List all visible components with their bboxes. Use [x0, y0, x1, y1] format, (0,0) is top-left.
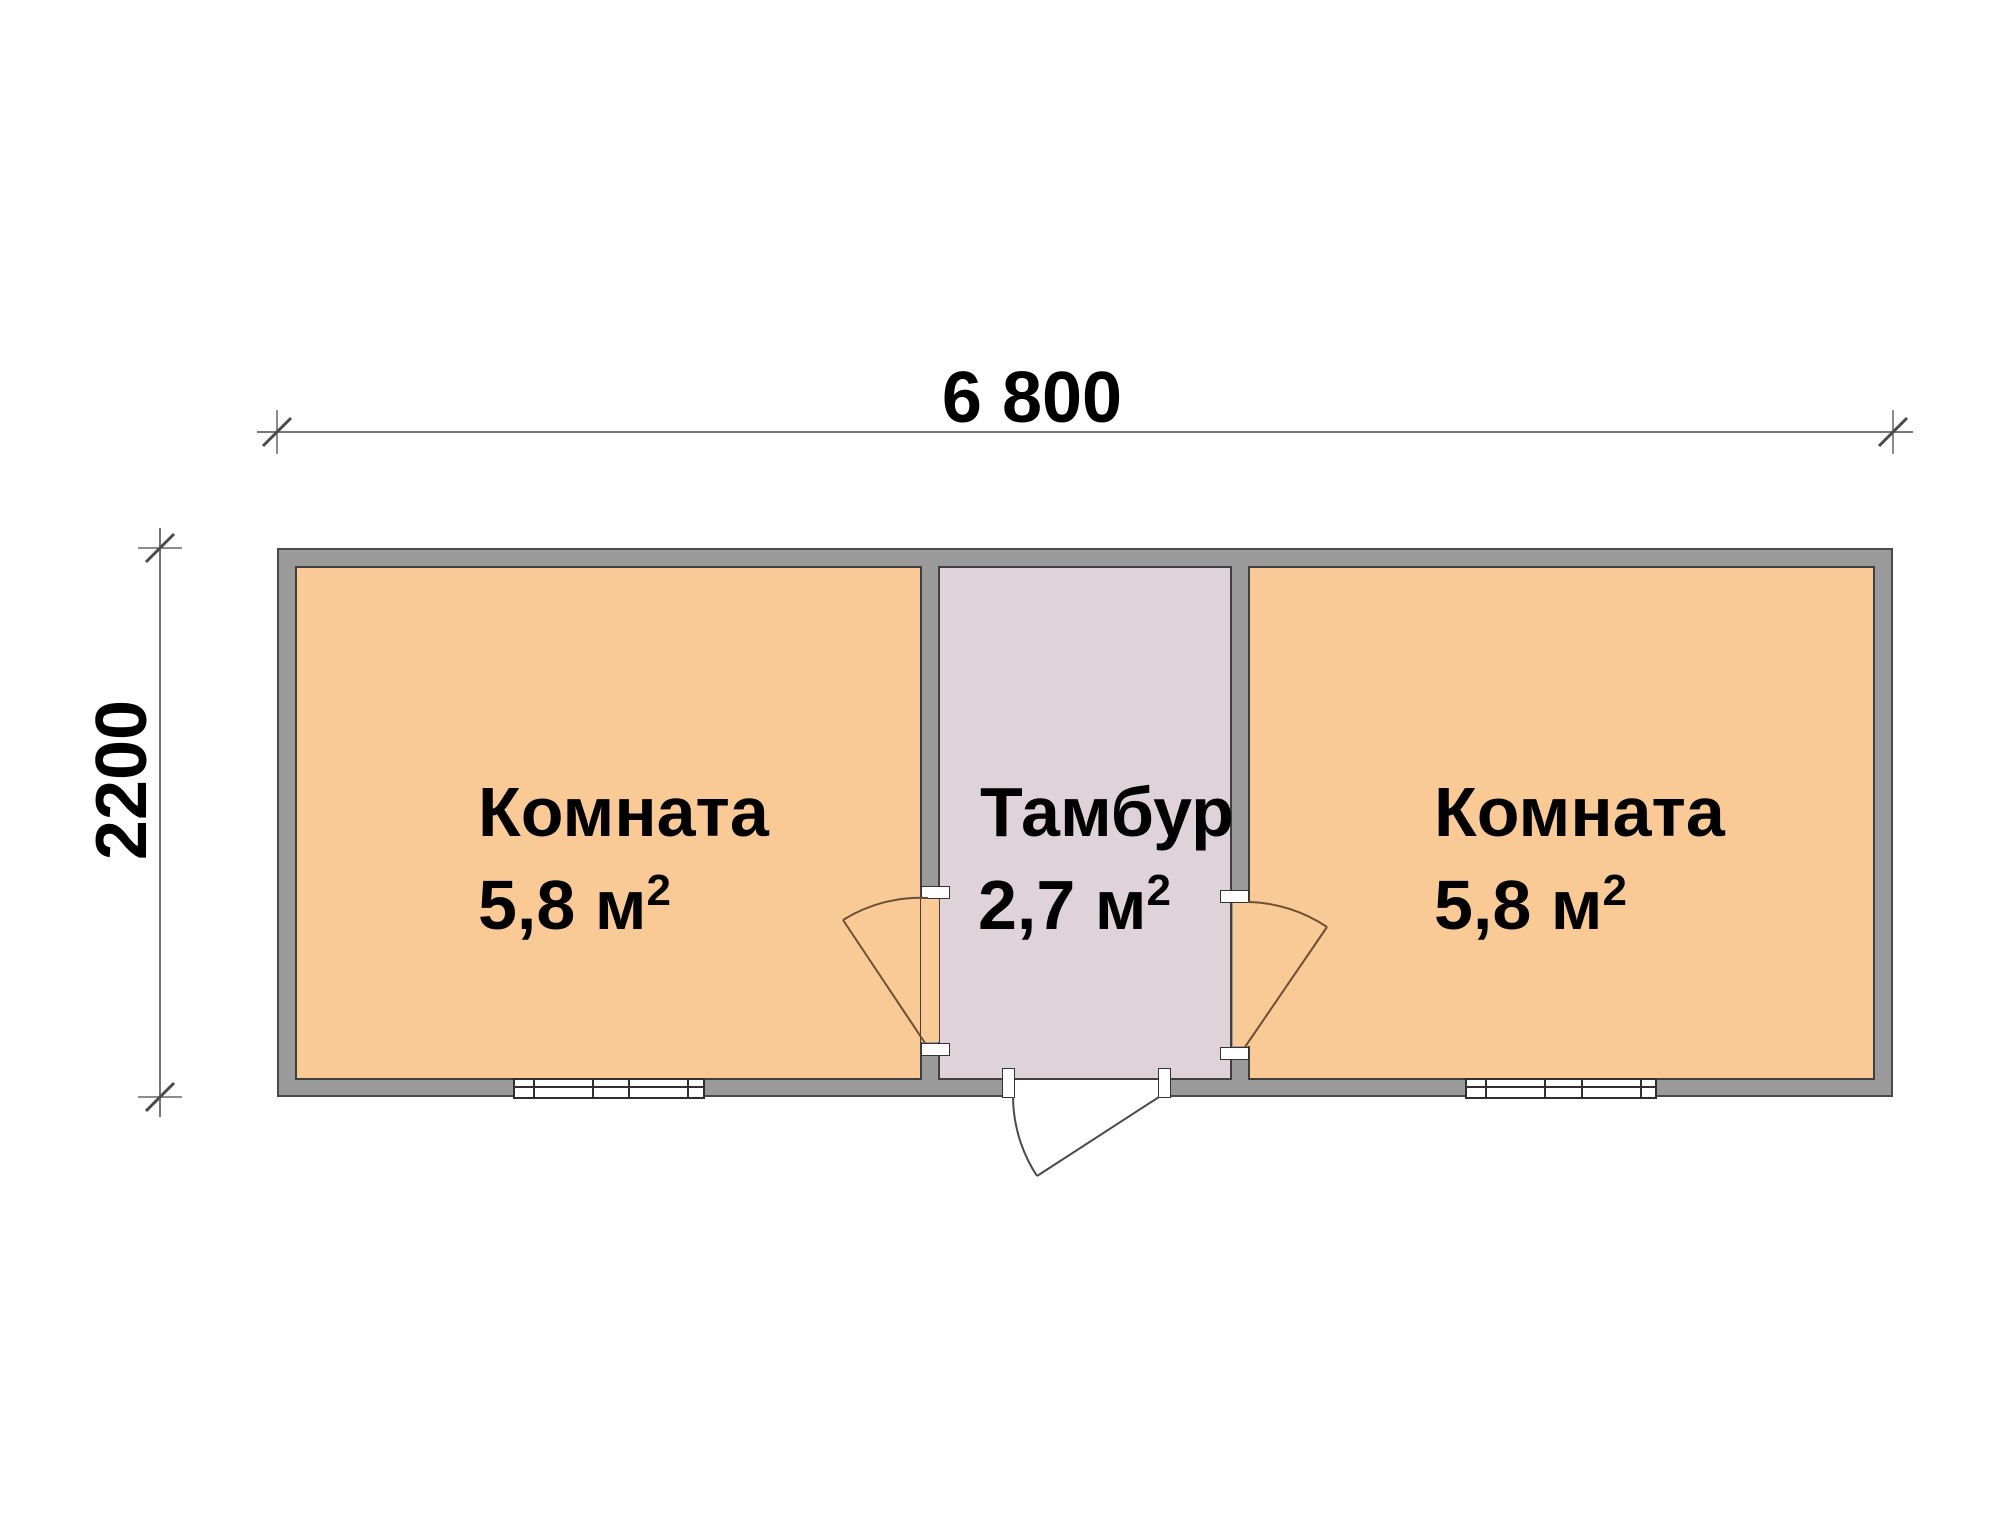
window-left [513, 1078, 705, 1099]
room-right-area-sup: 2 [1603, 866, 1627, 915]
dim-tick-slash [263, 418, 291, 446]
window-mullion [1544, 1080, 1546, 1097]
door-entrance-leaf [1037, 1097, 1159, 1176]
room-right-name: Комната [1434, 777, 1725, 847]
window-glass-line [1467, 1086, 1655, 1088]
door-jamb [1002, 1068, 1015, 1098]
door-entrance-swing-arc [1013, 1097, 1037, 1176]
window-mullion [628, 1080, 630, 1097]
dimension-height-label: 2200 [86, 580, 158, 980]
window-mullion [687, 1080, 689, 1097]
room-left-area-value: 5,8 м [478, 866, 647, 944]
floor-plan-canvas: 6 800 2200 Комната 5,8 м2 Тамбур 2,7 м2 … [0, 0, 2000, 1539]
room-left-area: 5,8 м2 [478, 870, 671, 940]
window-mullion [592, 1080, 594, 1097]
window-right [1465, 1078, 1657, 1099]
room-right-area-value: 5,8 м [1434, 866, 1603, 944]
room-right-area: 5,8 м2 [1434, 870, 1627, 940]
window-glass-line [515, 1086, 703, 1088]
room-vestibule-area: 2,7 м2 [978, 870, 1171, 940]
door-jamb [921, 886, 950, 899]
door-jamb [1220, 1047, 1249, 1060]
window-mullion [1640, 1080, 1642, 1097]
room-left-area-sup: 2 [647, 866, 671, 915]
dimension-width-label: 6 800 [832, 362, 1232, 434]
door-opening-left-partition [921, 899, 939, 1042]
dim-tick-slash [1879, 418, 1907, 446]
room-vestibule-area-sup: 2 [1147, 866, 1171, 915]
door-jamb [1158, 1068, 1171, 1098]
door-opening-right-partition [1233, 903, 1251, 1046]
dim-tick-slash [146, 534, 174, 562]
dim-tick-slash [146, 1083, 174, 1111]
room-vestibule-area-value: 2,7 м [978, 866, 1147, 944]
room-left-name: Комната [478, 777, 769, 847]
window-mullion [1485, 1080, 1487, 1097]
window-mullion [533, 1080, 535, 1097]
door-opening-entrance [1014, 1080, 1159, 1099]
room-vestibule-name: Тамбур [980, 777, 1234, 847]
door-jamb [921, 1043, 950, 1056]
door-jamb [1220, 890, 1249, 903]
window-mullion [1581, 1080, 1583, 1097]
